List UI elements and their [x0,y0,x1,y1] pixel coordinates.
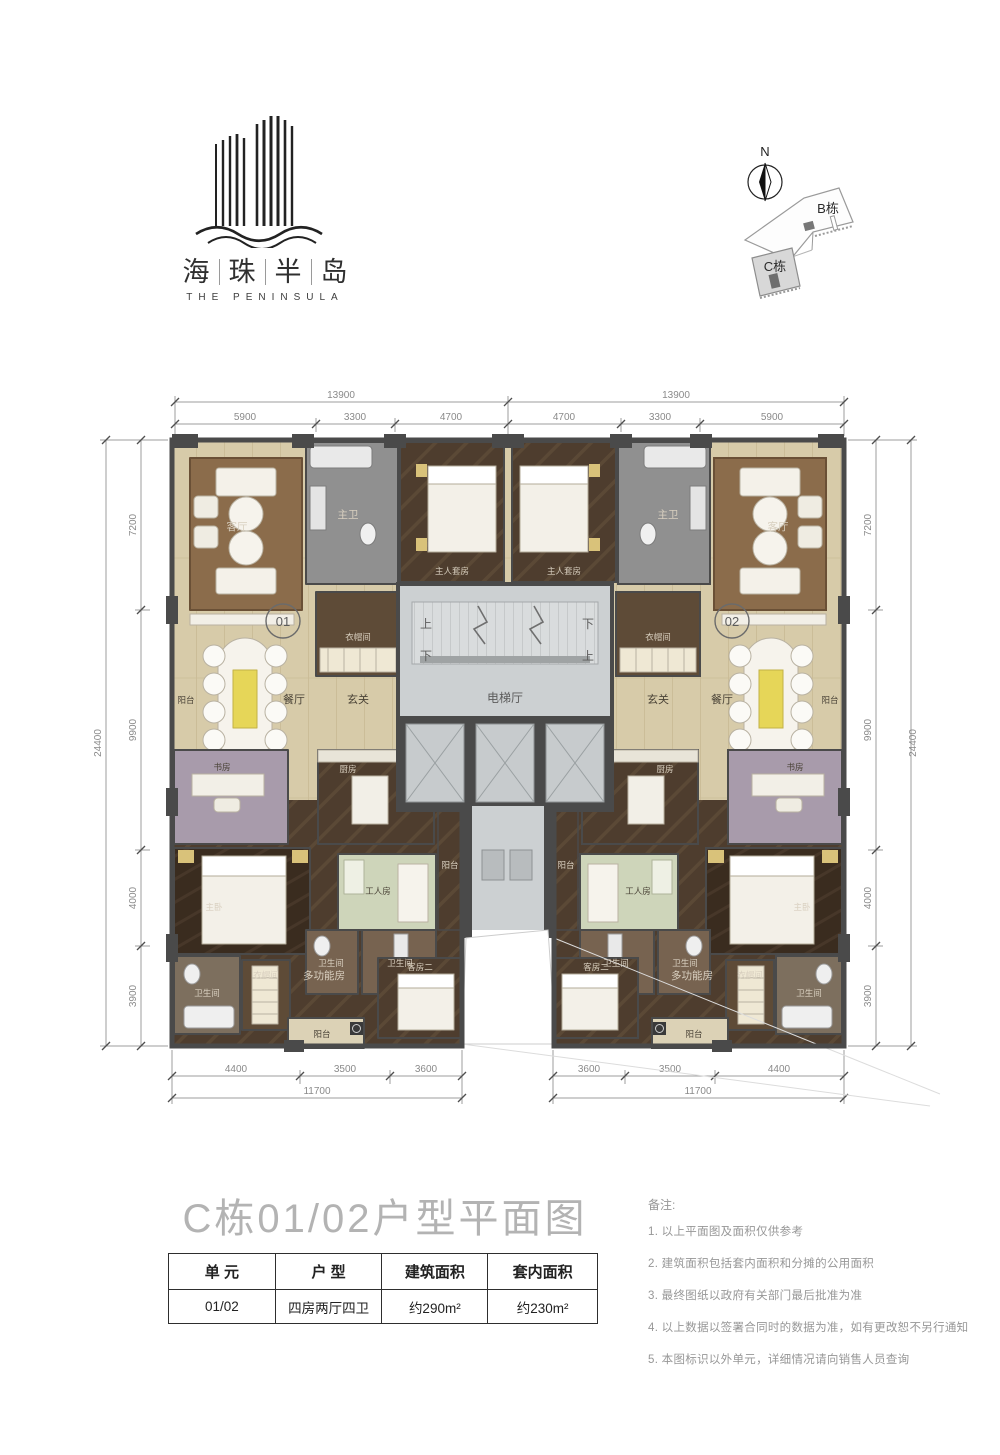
svg-text:3300: 3300 [344,412,367,423]
svg-text:24400: 24400 [908,729,919,757]
svg-text:3900: 3900 [863,984,874,1007]
room-label-guest2: 客房二 [407,962,433,972]
svg-text:3600: 3600 [578,1064,601,1075]
svg-text:工人房: 工人房 [625,886,651,896]
svg-text:11700: 11700 [303,1086,331,1097]
svg-text:阳台: 阳台 [557,860,574,870]
svg-text:5900: 5900 [234,412,257,423]
towers-logo-icon [150,98,380,248]
brand-name-cn: 海珠半岛 [150,257,380,287]
svg-text:4400: 4400 [225,1064,248,1075]
room-label-bathroom: 卫生间 [318,958,344,968]
svg-text:11700: 11700 [684,1086,712,1097]
brand-char: 岛 [312,257,357,287]
room-label-living: 客厅 [227,520,248,533]
svg-text:卫生间: 卫生间 [194,988,220,998]
svg-text:4000: 4000 [128,886,139,909]
svg-text:24400: 24400 [93,729,104,757]
svg-text:阳台: 阳台 [821,695,838,705]
svg-text:4400: 4400 [768,1064,791,1075]
note-item: 5. 本图标识以外单元，详细情况请向销售人员查询 [648,1351,978,1367]
spec-table-header-row: 单 元 户 型 建筑面积 套内面积 [169,1254,598,1290]
spec-table-data-row: 01/02 四房两厅四卫 约290m² 约230m² [169,1290,598,1324]
svg-text:3500: 3500 [659,1064,682,1075]
svg-text:书房: 书房 [786,762,803,772]
room-label-elevator-hall: 电梯厅 [487,691,523,705]
room-label-cloakroom: 衣帽间 [345,632,371,642]
room-label-cloak-lower: 衣帽间 [253,970,279,980]
floor-plan: 13900 13900 5900 3300 4700 4700 3300 590… [0,378,1000,1123]
svg-text:阳台: 阳台 [685,1029,702,1039]
building-c-label: C栋 [764,259,786,274]
svg-text:餐厅: 餐厅 [711,692,733,706]
svg-text:卫生间: 卫生间 [796,988,822,998]
svg-text:7200: 7200 [128,513,139,536]
room-label-foyer: 玄关 [347,692,369,706]
svg-text:卫生间: 卫生间 [672,958,698,968]
stair-down-label: 下 [420,649,432,663]
svg-text:3300: 3300 [649,412,672,423]
room-label-balcony: 阳台 [177,695,194,705]
room-label-master-bath: 主卫 [338,509,359,521]
svg-text:主人套房: 主人套房 [547,566,581,576]
svg-text:主卫: 主卫 [658,509,679,521]
room-label-kitchen: 厨房 [339,764,356,774]
note-item: 2. 建筑面积包括套内面积和分摊的公用面积 [648,1255,978,1271]
svg-text:9900: 9900 [128,718,139,741]
note-item: 1. 以上平面图及面积仅供参考 [648,1223,978,1239]
svg-text:下: 下 [582,617,594,631]
svg-text:N: N [760,144,769,159]
unit-01-number: 01 [276,614,290,629]
svg-text:衣帽间: 衣帽间 [645,632,671,642]
cell-inner-area: 约230m² [488,1290,598,1324]
svg-text:玄关: 玄关 [647,692,669,706]
svg-text:5900: 5900 [761,412,784,423]
svg-text:3600: 3600 [415,1064,438,1075]
north-compass-icon: N [748,144,782,201]
site-plan: B栋 C栋 [745,188,853,298]
site-map: N B栋 C栋 [720,138,930,323]
svg-text:多功能房: 多功能房 [671,969,713,982]
svg-text:3900: 3900 [128,984,139,1007]
svg-text:衣帽间: 衣帽间 [737,970,763,980]
room-label-master-suite: 主人套房 [435,566,469,576]
svg-text:13900: 13900 [327,390,355,401]
notes-block: 备注: 1. 以上平面图及面积仅供参考 2. 建筑面积包括套内面积和分摊的公用面… [648,1196,978,1383]
col-inner-area: 套内面积 [488,1254,598,1290]
room-label-study: 书房 [213,762,230,772]
col-layout: 户 型 [275,1254,382,1290]
col-built-area: 建筑面积 [382,1254,488,1290]
svg-text:客房二: 客房二 [583,962,609,972]
cell-unit: 01/02 [169,1290,276,1324]
svg-text:厨房: 厨房 [656,764,673,774]
svg-text:3500: 3500 [334,1064,357,1075]
svg-text:客厅: 客厅 [768,520,789,533]
room-label-multi: 多功能房 [303,969,345,982]
svg-text:4700: 4700 [440,412,463,423]
brand-char: 珠 [220,257,265,287]
room-label-master-bed: 主卧 [205,902,223,912]
svg-text:7200: 7200 [863,513,874,536]
svg-text:上: 上 [582,649,594,663]
svg-text:13900: 13900 [662,390,690,401]
brand-name-en: THE PENINSULA [150,292,380,303]
room-label-dining: 餐厅 [283,692,305,706]
note-item: 4. 以上数据以签署合同时的数据为准，如有更改恕不另行通知 [648,1319,978,1335]
brand-char: 半 [266,257,311,287]
svg-text:阳台: 阳台 [313,1029,330,1039]
room-label-worker: 工人房 [365,886,391,896]
svg-text:9900: 9900 [863,718,874,741]
page-title: C栋01/02户型平面图 [165,1186,605,1244]
svg-text:主卧: 主卧 [793,902,811,912]
building-b-label: B栋 [817,201,839,216]
brand-char: 海 [174,257,219,287]
cell-built-area: 约290m² [382,1290,488,1324]
svg-text:4700: 4700 [553,412,576,423]
note-item: 3. 最终图纸以政府有关部门最后批准为准 [648,1287,978,1303]
col-unit: 单 元 [169,1254,276,1290]
notes-heading: 备注: [648,1196,978,1213]
unit-02-number: 02 [725,614,739,629]
brand-logo: 海珠半岛 THE PENINSULA [150,98,380,303]
stair-up-label: 上 [420,617,432,631]
svg-text:4000: 4000 [863,886,874,909]
spec-table: 单 元 户 型 建筑面积 套内面积 01/02 四房两厅四卫 约290m² 约2… [168,1253,598,1324]
svg-text:阳台: 阳台 [441,860,458,870]
cell-layout: 四房两厅四卫 [275,1290,382,1324]
